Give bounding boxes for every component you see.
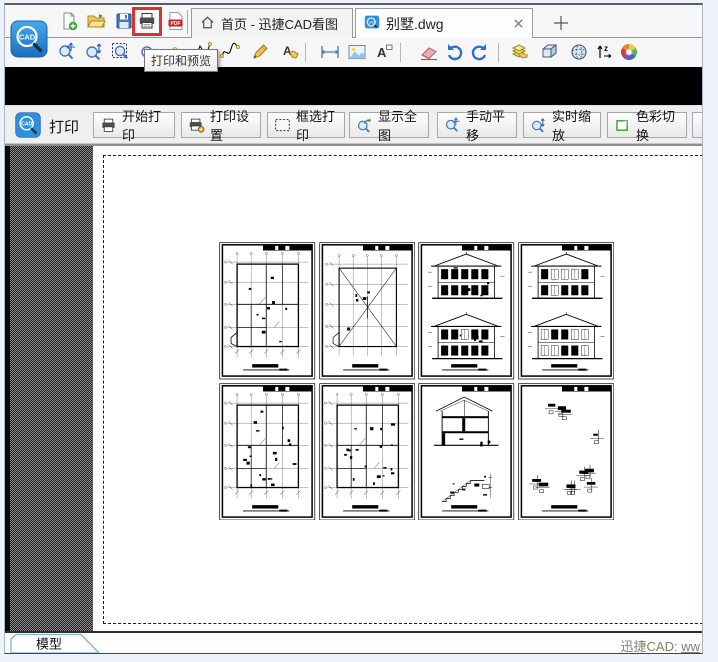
- zoom-icon[interactable]: [83, 41, 105, 63]
- tab-home-label: 首页 - 迅捷CAD看图: [221, 14, 338, 33]
- tooltip: 打印和预览: [144, 49, 218, 72]
- print-highlight-box: [132, 7, 162, 36]
- toolbar-separator: [400, 43, 401, 62]
- color-wheel-icon[interactable]: [618, 41, 640, 63]
- print-preview-canvas[interactable]: [5, 144, 702, 631]
- realtime-zoom-button[interactable]: 实时缩放: [523, 112, 601, 138]
- measure-icon[interactable]: [319, 41, 341, 63]
- svg-text:z: z: [604, 44, 608, 53]
- orbit-3d-icon[interactable]: [568, 41, 590, 63]
- marquee-icon: [274, 117, 291, 134]
- text-icon[interactable]: A: [373, 41, 395, 63]
- drawing-sheet-roof-plan: [319, 242, 416, 380]
- pencil-icon[interactable]: [249, 41, 271, 63]
- annotate-icon[interactable]: A: [279, 41, 301, 63]
- home-icon: [200, 15, 215, 33]
- zoom-extents-icon: [356, 117, 373, 134]
- app-window: PDF 首页 - 迅捷CAD看图 CAD 别墅.dwg CAD: [4, 3, 703, 654]
- zoom-realtime-icon: [530, 117, 547, 134]
- new-file-icon[interactable]: [58, 10, 80, 32]
- back-view-button[interactable]: [692, 112, 702, 138]
- eraser-icon[interactable]: [418, 41, 440, 63]
- manual-pan-button[interactable]: 手动平移: [437, 112, 517, 138]
- paper-left-edge: [92, 146, 93, 631]
- app-logo: CAD: [10, 20, 48, 58]
- print-panel-title: 打印: [49, 116, 79, 137]
- layout-icon[interactable]: [346, 41, 368, 63]
- tooltip-text: 打印和预览: [151, 52, 211, 69]
- svg-text:A: A: [283, 44, 292, 58]
- toolbar-separator: [305, 43, 306, 62]
- zoom-window-icon[interactable]: [110, 41, 132, 63]
- toolbar-separator: [187, 10, 188, 34]
- toolbar-separator: [498, 43, 499, 62]
- drawing-sheet-floor-plan: [219, 242, 316, 380]
- ribbon-gap: [5, 67, 702, 105]
- color-switch-button[interactable]: 色彩切换: [607, 112, 687, 138]
- svg-text:模型: 模型: [36, 637, 62, 652]
- drawing-sheet-section-stair: [418, 383, 515, 521]
- canvas-top-edge: [5, 144, 702, 146]
- drawing-sheet-floor-plan-3: [319, 383, 416, 521]
- offpaper-checker: [10, 146, 92, 631]
- svg-text:CAD: CAD: [19, 33, 36, 42]
- undo-icon[interactable]: [444, 41, 466, 63]
- printer-icon: [100, 117, 117, 134]
- drawing-sheet-elevation-dense: [418, 242, 515, 380]
- drawing-sheet-details: [518, 383, 615, 521]
- drawing-sheets-grid: [219, 242, 614, 519]
- print-settings-button[interactable]: 打印设置: [181, 112, 261, 138]
- drawing-sheet-elevation-light: [518, 242, 615, 380]
- svg-text:CAD: CAD: [21, 121, 32, 127]
- svg-text:A: A: [377, 45, 387, 60]
- new-tab-icon[interactable]: [550, 12, 572, 34]
- back-view-icon: [699, 117, 702, 134]
- print-toolbar: CAD 打印 开始打印 打印设置 框选打印 显示全图 手动平移 实时缩放: [5, 105, 702, 144]
- cad-file-icon: CAD: [364, 14, 380, 33]
- tab-document[interactable]: CAD 别墅.dwg: [355, 8, 533, 38]
- printer-settings-icon: [188, 117, 205, 134]
- tab-document-label: 别墅.dwg: [386, 14, 444, 34]
- print-logo: CAD: [15, 112, 41, 138]
- show-full-view-button[interactable]: 显示全图: [349, 112, 429, 138]
- box-select-print-button[interactable]: 框选打印: [267, 112, 345, 138]
- layers-icon[interactable]: [508, 41, 530, 63]
- sort-icon[interactable]: z: [594, 41, 616, 63]
- box-3d-icon[interactable]: [538, 41, 560, 63]
- start-print-button[interactable]: 开始打印: [93, 112, 175, 138]
- draw-toolbar: A A z: [5, 38, 702, 67]
- open-folder-icon[interactable]: [85, 10, 107, 32]
- pan-icon: [444, 117, 461, 134]
- tab-home[interactable]: 首页 - 迅捷CAD看图: [191, 8, 353, 38]
- brand-link[interactable]: ww: [681, 639, 700, 654]
- drawing-sheet-floor-plan-2: [219, 383, 316, 521]
- pdf-export-icon[interactable]: PDF: [165, 10, 187, 32]
- color-switch-icon: [614, 117, 631, 134]
- redo-icon[interactable]: [468, 41, 490, 63]
- model-tab[interactable]: 模型: [9, 633, 103, 654]
- pan-icon[interactable]: [56, 41, 78, 63]
- svg-text:CAD: CAD: [367, 21, 375, 25]
- spline-icon[interactable]: [219, 41, 241, 63]
- close-icon[interactable]: [513, 16, 524, 32]
- file-toolbar: PDF 首页 - 迅捷CAD看图 CAD 别墅.dwg: [5, 5, 702, 38]
- svg-text:PDF: PDF: [171, 21, 181, 27]
- status-bar: 模型 迅捷CAD: ww: [5, 631, 702, 654]
- brand-text: 迅捷CAD: ww: [621, 636, 700, 654]
